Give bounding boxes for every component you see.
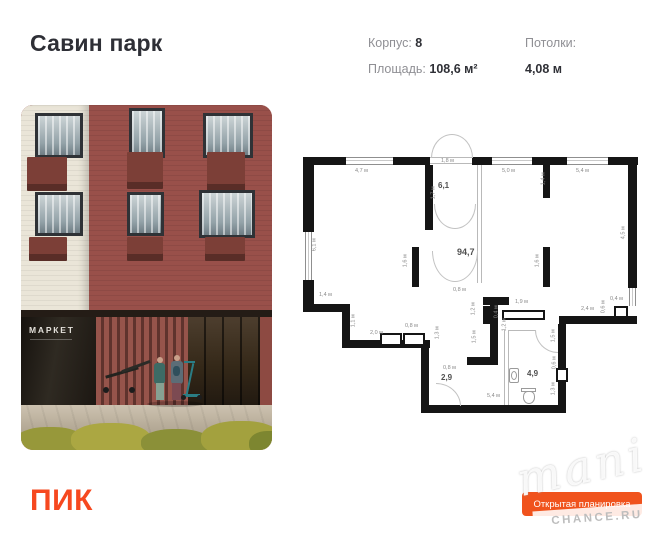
dimension-label: 1,3 м (436, 326, 442, 339)
window (129, 108, 165, 158)
dimension-label: 5,4 м (576, 169, 589, 175)
person-legs (156, 383, 164, 400)
spec-area-label: Площадь: (368, 62, 426, 76)
scooter-stem (186, 363, 195, 395)
scooter-wheel (129, 387, 135, 393)
spec-building: Корпус: 8 (368, 36, 422, 50)
dimension-label: 5,4 м (487, 394, 500, 400)
spec-area: Площадь: 108,6 м² (368, 62, 478, 76)
dimension-label: 0,6 м (553, 356, 559, 369)
dimension-label: 0,6 м (602, 300, 608, 313)
dimension-label: 1,7 м (432, 186, 438, 199)
market-sign: МАРКЕТ (29, 325, 75, 335)
spec-building-value: 8 (415, 36, 422, 50)
dimension-label: 4,7 м (355, 169, 368, 175)
balcony (127, 237, 163, 261)
room-area-label: 94,7 (457, 248, 475, 257)
spec-area-value: 108,6 м² (429, 62, 477, 76)
pik-logo[interactable]: ПИК (30, 484, 93, 518)
person-legs (172, 383, 181, 400)
dimension-label: 2,0 м (370, 331, 383, 337)
balcony (27, 157, 67, 191)
dimension-label: 0,8 м (453, 288, 466, 294)
dimension-label: 6,1 м (313, 238, 319, 251)
scooter-wheel (181, 395, 186, 400)
dimension-label: 1,9 м (515, 300, 528, 306)
room-area-label: 2,9 (441, 374, 452, 382)
balcony (205, 237, 245, 261)
scooter-handlebar (184, 361, 195, 363)
open-layout-button[interactable]: Открытая планировка (522, 492, 642, 516)
dimension-label: 1,3 м (552, 382, 558, 395)
building-photo[interactable]: МАРКЕТ (21, 105, 272, 450)
open-layout-button-label: Открытая планировка (533, 499, 630, 510)
room-area-label: 6,1 (438, 182, 449, 190)
bush (71, 423, 151, 450)
shadow (147, 401, 203, 407)
spec-ceiling-label: Потолки: (525, 36, 576, 50)
balcony (127, 152, 163, 189)
dimension-label: 0,4 м (495, 305, 501, 318)
window (35, 192, 83, 236)
dimension-label: 1,5 м (473, 330, 479, 343)
dimension-label: 0,8 м (443, 366, 456, 372)
balcony (29, 237, 67, 261)
spec-ceiling: Потолки: (525, 36, 576, 50)
dimension-label: 1,5 м (552, 329, 558, 342)
person-body (154, 363, 165, 384)
balcony (207, 152, 245, 191)
page-title: Савин парк (30, 30, 163, 57)
dimension-label: 0,8 м (405, 324, 418, 330)
brick-pillar (260, 317, 272, 409)
dimension-label: 1,6 м (536, 254, 542, 267)
floorplan-labels: 4,7 м1,8 м5,0 м5,4 м1,7 м1,4 м6,1 м4,5 м… (295, 130, 651, 425)
scooter-wheel (103, 387, 109, 393)
dimension-label: 4,5 м (622, 226, 628, 239)
dimension-label: 5,0 м (502, 169, 515, 175)
spec-ceiling-value: 4,08 м (525, 62, 562, 76)
dimension-label: 2,4 м (581, 307, 594, 313)
dimension-label: 1,8 м (441, 159, 454, 165)
window (35, 113, 83, 158)
market-sign-underline (30, 339, 72, 340)
dimension-label: 1,2 м (503, 318, 509, 331)
floorplan: 4,7 м1,8 м5,0 м5,4 м1,7 м1,4 м6,1 м4,5 м… (295, 130, 651, 425)
window (127, 192, 164, 236)
baby-carrier (173, 366, 180, 376)
storefront-glass: МАРКЕТ (21, 317, 96, 409)
dimension-label: 1,4 м (542, 172, 548, 185)
dimension-label: 1,4 м (319, 293, 332, 299)
room-area-label: 4,9 (527, 370, 538, 378)
dimension-label: 1,1 м (352, 314, 358, 327)
window (199, 190, 255, 238)
pedestrians (133, 345, 205, 419)
dimension-label: 0,4 м (610, 297, 623, 303)
dimension-label: 1,2 м (472, 302, 478, 315)
scooter-wheel (197, 395, 202, 400)
dimension-label: 1,6 м (404, 254, 410, 267)
spec-ceiling-value-row: 4,08 м (525, 62, 562, 76)
bushes (21, 421, 272, 450)
spec-building-label: Корпус: (368, 36, 412, 50)
